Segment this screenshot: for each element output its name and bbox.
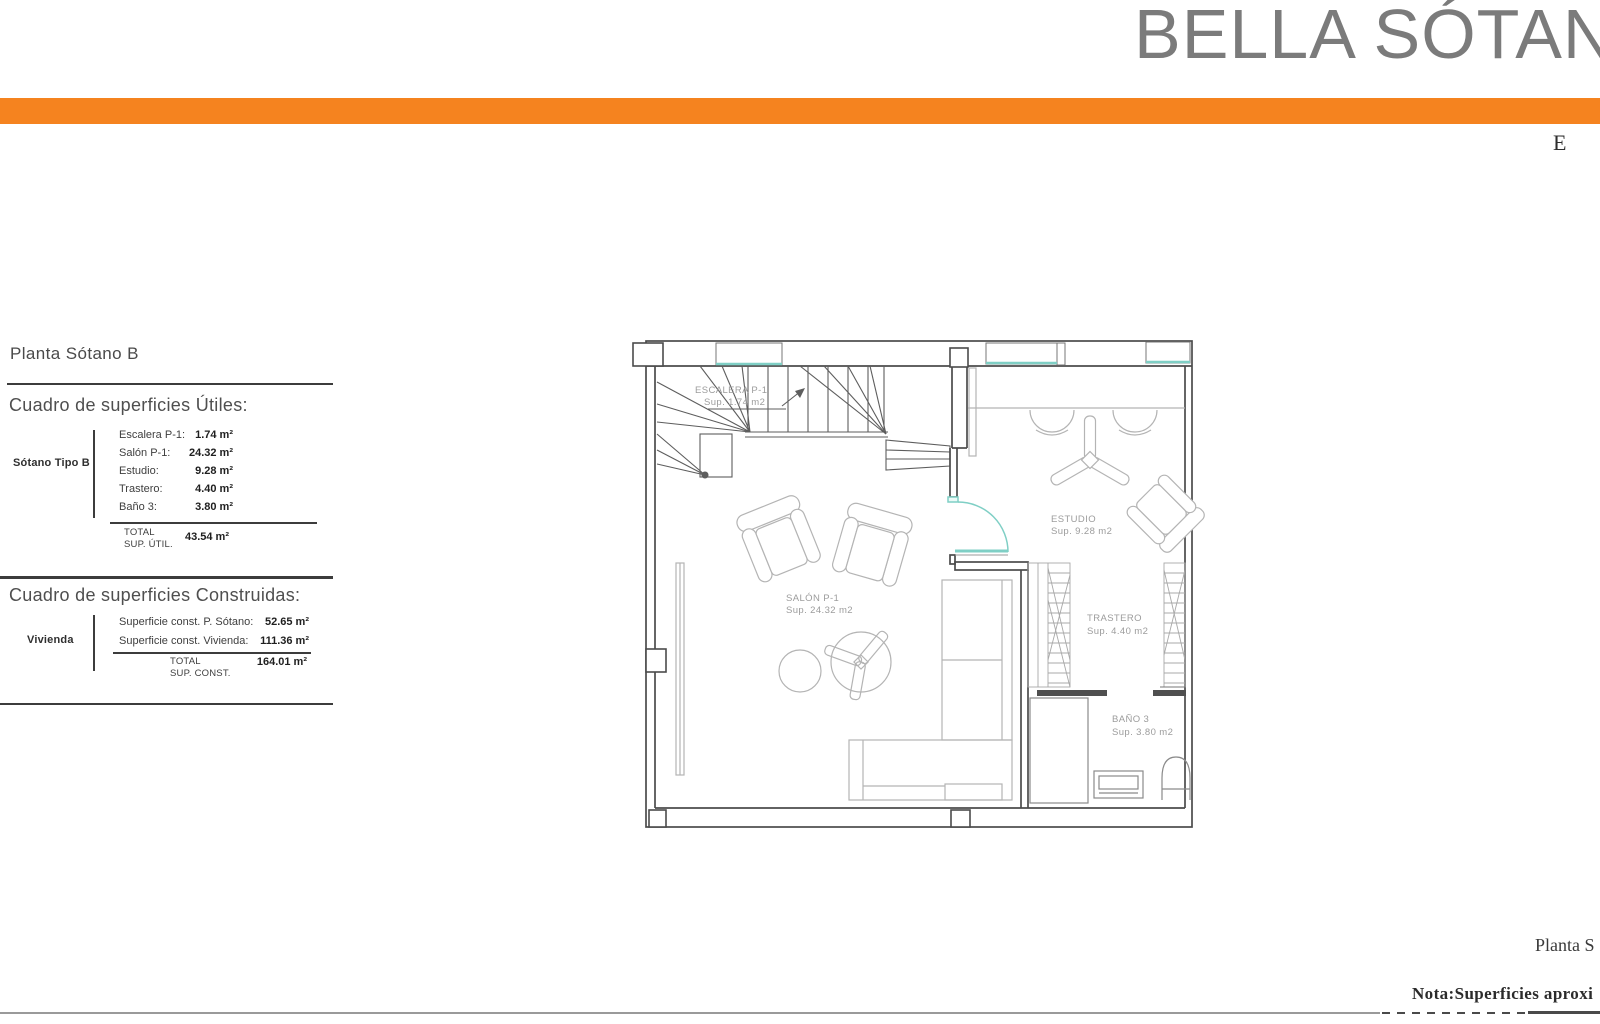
- tripod-chair: [1049, 416, 1131, 487]
- bottom-border-dashes: [1382, 1012, 1528, 1014]
- bathroom-fixtures: [1030, 698, 1190, 803]
- room-area-bano: Sup. 3.80 m2: [1112, 727, 1173, 738]
- bath-wall-bars: [1037, 690, 1186, 696]
- estudio-door: [948, 497, 1008, 555]
- shower: [1030, 698, 1088, 803]
- room-area-salon: Sup. 24.32 m2: [786, 605, 853, 616]
- side-table: [779, 650, 821, 692]
- shelving-racks: [1028, 563, 1185, 687]
- room-label-estudio: ESTUDIO: [1051, 514, 1096, 525]
- swivel-chair: [824, 630, 891, 701]
- walls: [646, 341, 1192, 827]
- salon-furniture: [676, 493, 1012, 800]
- staircase: [657, 366, 950, 478]
- plan-caption: Planta S: [1535, 935, 1595, 956]
- bottom-border-line-end: [1528, 1011, 1600, 1014]
- note-text: Nota:Superficies aproxi: [1412, 984, 1593, 1004]
- floor-plan: ESCALERA P-1 Sup. 1.74 m2 SALÓN P-1 Sup.…: [0, 0, 1600, 1024]
- divider-wall: [950, 367, 1028, 808]
- room-label-trastero: TRASTERO: [1087, 613, 1142, 624]
- room-label-salon: SALÓN P-1: [786, 593, 839, 604]
- desk-chair: [1030, 410, 1074, 432]
- l-sofa: [849, 580, 1012, 800]
- desk-panel: [969, 368, 976, 456]
- page: { "header": { "title": "BELLA SÓTANO", "…: [0, 0, 1600, 1024]
- armchair: [1125, 473, 1207, 555]
- bottom-border-line: [0, 1012, 1380, 1014]
- room-area-trastero: Sup. 4.40 m2: [1087, 626, 1148, 637]
- room-label-bano: BAÑO 3: [1112, 714, 1149, 725]
- sink: [1094, 771, 1143, 798]
- armchair: [735, 493, 823, 584]
- armchair: [831, 501, 914, 587]
- desk-chair: [1113, 410, 1157, 432]
- room-area-estudio: Sup. 9.28 m2: [1051, 526, 1112, 537]
- room-label-escalera: ESCALERA P-1: [695, 385, 767, 396]
- radiator: [676, 563, 684, 775]
- room-area-escalera: Sup. 1.74 m2: [704, 397, 765, 408]
